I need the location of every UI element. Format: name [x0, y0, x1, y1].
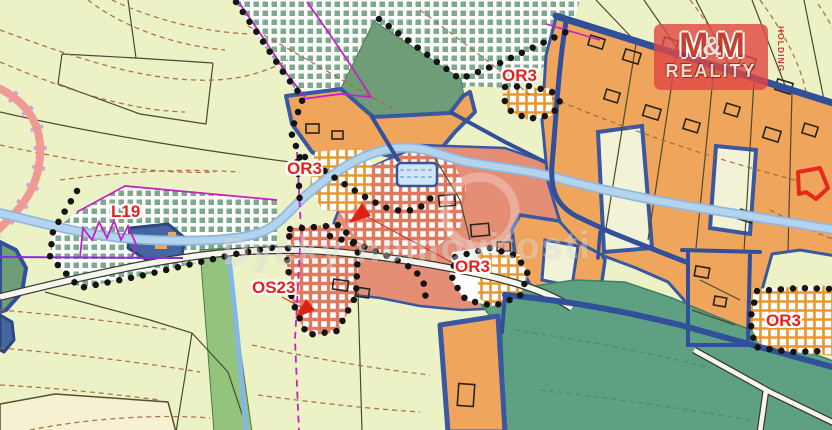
- mm-reality-logo-box: M&M REALITY: [654, 24, 768, 90]
- mm-reality-logo: M&M REALITY HOLDING: [654, 22, 788, 92]
- pond: [397, 163, 437, 186]
- ampersand-glyph: &: [702, 35, 720, 57]
- reality-wordmark: REALITY: [665, 61, 756, 82]
- mm-wordmark: M&M: [679, 32, 743, 61]
- highlighted-building: [798, 168, 828, 199]
- holding-wordmark: HOLDING: [776, 26, 786, 72]
- zoning-map-viewport[interactable]: Dycky nemovitosti L19 OR3 OR3 OR3 OR3 OS…: [0, 0, 832, 430]
